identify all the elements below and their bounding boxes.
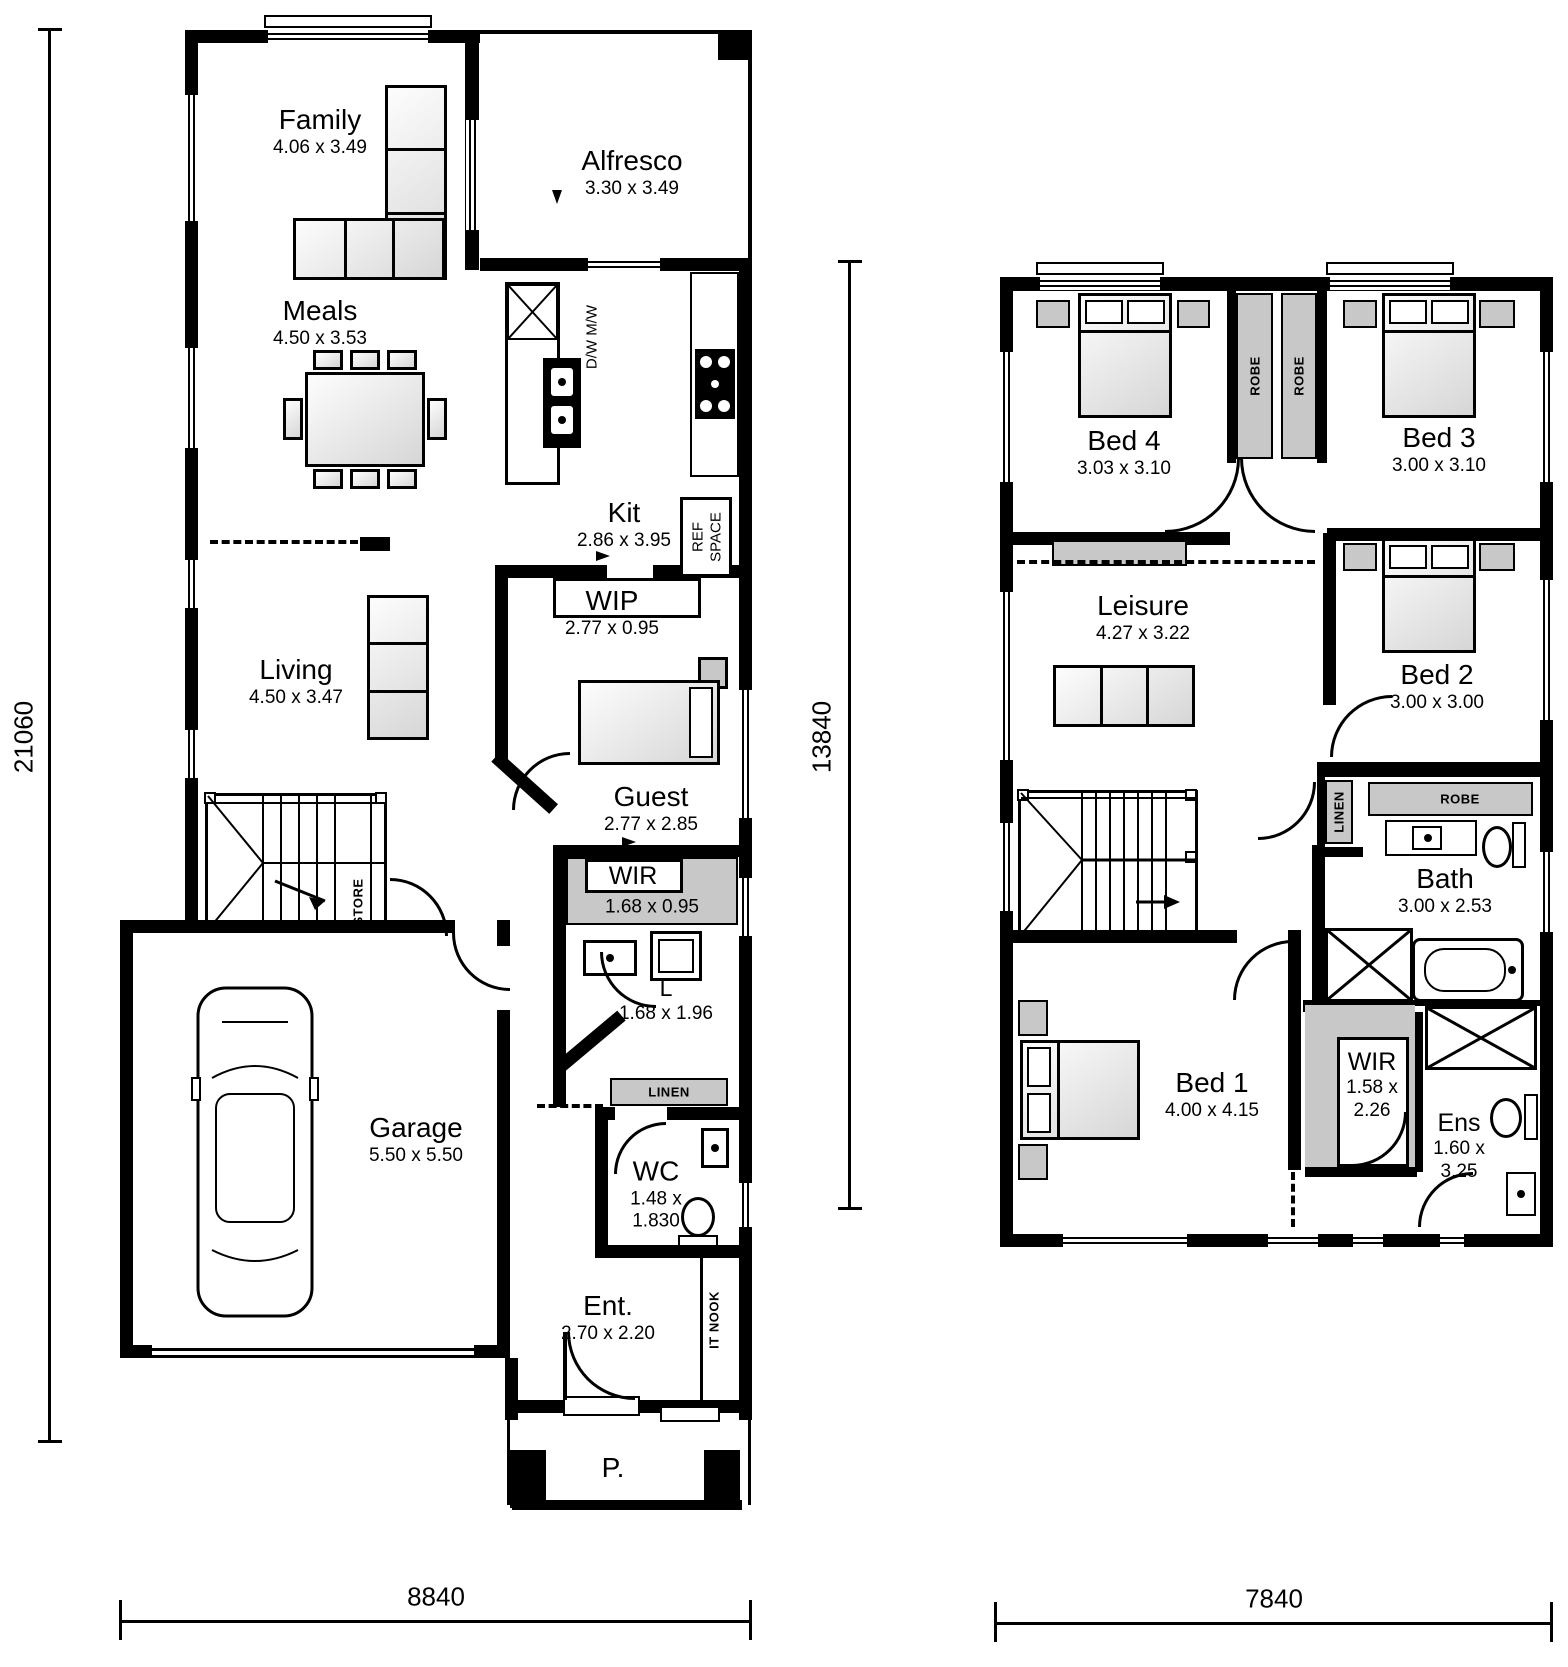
room-dims: 3.00 x 3.00 — [1390, 691, 1484, 714]
room-name: Living — [249, 653, 343, 687]
room-dims: 3.00 x 2.53 — [1398, 895, 1492, 918]
ff-bed3-window-sill — [1326, 262, 1454, 275]
cooktop-icon — [694, 348, 736, 420]
hall-arch-right — [1240, 458, 1315, 533]
ff-hall-bottom-window — [1268, 1234, 1318, 1247]
room-name: Bed 1 — [1165, 1066, 1259, 1100]
room-label-bath: Bath 3.00 x 2.53 — [1398, 862, 1492, 918]
alfresco-bottom-window — [588, 258, 660, 271]
porch-bottom-edge — [512, 1500, 742, 1510]
gf-linen-label: LINEN — [648, 1085, 690, 1100]
room-dims: 4.00 x 4.15 — [1165, 1099, 1259, 1122]
room-name: Meals — [273, 294, 367, 328]
space-label: SPACE — [708, 512, 725, 562]
room-label-kit: Kit 2.86 x 3.95 — [577, 496, 671, 552]
bed-pillow — [1027, 1093, 1051, 1133]
dw-mw-label: D/W M/W — [584, 305, 601, 369]
dining-chair — [313, 469, 343, 489]
bed3-robe-label: ROBE — [1292, 356, 1307, 396]
bed1-door-arc — [1233, 940, 1293, 1000]
robe-wall-left — [1227, 291, 1236, 463]
porch-window-sill — [660, 1406, 720, 1422]
room-name: Bed 2 — [1390, 658, 1484, 692]
room-name: Guest — [604, 780, 698, 814]
ff-width-dim-tick-left — [994, 1602, 997, 1642]
family-sofa-seat — [293, 218, 445, 280]
room-name: Ens — [1433, 1108, 1485, 1138]
sofa-seam — [1146, 668, 1149, 724]
gf-height-dim-line — [48, 30, 51, 1443]
wc-toilet-tank — [678, 1235, 718, 1247]
ff-width-dim-label: 7840 — [1245, 1584, 1303, 1615]
room-dims: 2.70 x 2.20 — [561, 1322, 655, 1345]
dining-chair — [350, 350, 380, 370]
bed4-side-table — [1177, 300, 1210, 328]
robe-wall-right — [1317, 291, 1327, 463]
bathtub-inner — [1424, 948, 1506, 992]
sofa-seam — [370, 642, 426, 645]
sofa-seam — [388, 212, 444, 215]
dining-chair — [387, 350, 417, 370]
room-label-bed2: Bed 2 3.00 x 3.00 — [1390, 658, 1484, 714]
garage-right-wall-upper — [497, 1010, 510, 1358]
bed-pillow — [1389, 545, 1427, 569]
island-hatch-icon — [507, 284, 558, 340]
gf-laundry-window — [739, 878, 752, 936]
gf-height-dim-tick-top — [38, 28, 62, 31]
porch-left-edge — [507, 1420, 510, 1505]
door-arrow-icon — [596, 551, 610, 561]
ff-ceiling-break-dash — [1017, 560, 1315, 564]
room-dims: 3.00 x 3.10 — [1392, 454, 1486, 477]
bed-sheet-line — [1385, 330, 1473, 333]
it-nook-divider — [700, 1258, 703, 1400]
room-dims: 2.77 x 2.85 — [604, 813, 698, 836]
sofa-seam — [344, 221, 347, 277]
room-dims: 3.03 x 3.10 — [1077, 457, 1171, 480]
gf-meals-left-window — [185, 348, 198, 448]
room-name: WIP — [565, 584, 659, 618]
leisure-sofa — [1053, 665, 1195, 727]
bed-sheet-line — [1385, 575, 1473, 578]
ff-stairs-icon — [1018, 790, 1198, 938]
room-name: Bed 4 — [1077, 424, 1171, 458]
garage-left-wall — [120, 920, 133, 1358]
stairs-door-arc — [390, 878, 448, 936]
room-name: Bath — [1398, 862, 1492, 896]
bed4-robe-label: ROBE — [1248, 356, 1263, 396]
gf-height-dim-tick-bottom — [38, 1440, 62, 1443]
room-name: Alfresco — [581, 144, 682, 178]
dining-chair — [427, 398, 447, 440]
bed2-left-wall — [1323, 533, 1336, 705]
room-dims: 1.60 x — [1433, 1138, 1485, 1161]
wc-bottom-wall — [595, 1245, 750, 1258]
bed-pillow — [1127, 300, 1165, 324]
car-icon — [192, 982, 318, 1322]
room-label-ens: Ens 1.60 x 3.25 — [1433, 1108, 1485, 1184]
ent-bottom-wall-left — [510, 1400, 565, 1413]
ff-hall-dash — [1291, 1172, 1295, 1227]
sofa-seam — [370, 690, 426, 693]
ff-bed3-right-window — [1540, 352, 1553, 482]
gf-hall-opening-dash — [537, 1104, 603, 1108]
ff-bath-right-window — [1540, 852, 1553, 932]
garage-bottom-wall-left — [120, 1345, 152, 1358]
alfresco-right-edge — [748, 30, 752, 270]
bed2-bed — [1382, 538, 1476, 653]
guest-door-arc — [512, 752, 570, 810]
ff-height-dim-line — [848, 262, 851, 1210]
bed3-side-table — [1343, 300, 1377, 328]
gf-height-dim-label: 21060 — [9, 701, 40, 773]
room-name: WC — [630, 1154, 682, 1188]
bed-pillow — [1431, 545, 1469, 569]
gf-width-dim-line — [120, 1620, 752, 1623]
wir-top-wall — [553, 845, 750, 857]
wc-top-wall-right — [667, 1107, 750, 1120]
ff-width-dim-tick-right — [1550, 1602, 1553, 1642]
sofa-seam — [388, 148, 444, 151]
guest-bed-pillow — [689, 687, 713, 758]
island-sink-drain-1 — [558, 378, 566, 386]
room-dims: 1.830 — [630, 1211, 682, 1234]
sofa-seam — [1100, 668, 1103, 724]
room-dims: 2.77 x 0.95 — [565, 617, 659, 640]
gf-itnook-window — [739, 1183, 752, 1227]
room-label-leisure: Leisure 4.27 x 3.22 — [1096, 589, 1190, 645]
bed-pillow — [1027, 1047, 1051, 1087]
ff-stairs-left-window — [1000, 823, 1013, 911]
ens-toilet-tank — [1524, 1094, 1538, 1140]
bed-sheet-line — [1081, 330, 1169, 333]
room-label-family: Family 4.06 x 3.49 — [273, 103, 367, 159]
bath-basin-drain — [1424, 834, 1432, 842]
room-name: Ent. — [561, 1289, 655, 1323]
room-name: L — [619, 975, 713, 1003]
room-name: WIR — [609, 861, 658, 891]
ff-width-dim-line — [995, 1622, 1553, 1625]
room-label-ent: Ent. 2.70 x 2.20 — [561, 1289, 655, 1345]
bath-shower-icon — [1325, 928, 1413, 1002]
store-label: STORE — [351, 878, 366, 925]
ff-height-dim-tick-bottom — [838, 1207, 862, 1210]
ff-leisure-left-window — [1000, 592, 1013, 760]
room-name: Garage — [369, 1111, 463, 1145]
room-name: Bed 3 — [1392, 421, 1486, 455]
room-name: WIR — [1346, 1047, 1398, 1077]
door-arrow-icon — [552, 190, 562, 204]
bed3-side-table — [1479, 300, 1515, 328]
laundry-diagonal-wall — [556, 1011, 626, 1072]
room-dims: 1.48 x — [630, 1188, 682, 1211]
dining-chair — [283, 398, 303, 440]
gf-width-dim-label: 8840 — [407, 1582, 465, 1613]
room-dims: 4.50 x 3.53 — [273, 327, 367, 350]
wip-left-wall — [495, 565, 508, 655]
ff-wir-bottom-window — [1353, 1234, 1383, 1247]
ff-bed1-bottom-window — [1063, 1234, 1187, 1247]
room-dims: 1.68 x 1.96 — [619, 1002, 713, 1025]
room-label-meals: Meals 4.50 x 3.53 — [273, 294, 367, 350]
room-label-wip: WIP 2.77 x 0.95 — [565, 584, 659, 640]
room-dims: 3.30 x 3.49 — [581, 177, 682, 200]
ff-bed4-window-sill — [1036, 262, 1164, 275]
bath-toilet-tank — [1512, 822, 1526, 868]
room-dims: 5.50 x 5.50 — [369, 1144, 463, 1167]
wc-basin-drain — [711, 1144, 719, 1152]
porch-right-edge — [748, 1420, 751, 1505]
gf-ceiling-break-dash — [210, 540, 358, 544]
room-label-living: Living 4.50 x 3.47 — [249, 653, 343, 709]
room-label-wc: WC 1.48 x 1.830 — [630, 1154, 682, 1233]
room-name: Leisure — [1096, 589, 1190, 623]
bed-pillow — [1085, 300, 1123, 324]
room-dims: 4.27 x 3.22 — [1096, 622, 1190, 645]
guest-left-wall — [495, 645, 508, 765]
room-label-gf-wir: WIR — [609, 861, 658, 891]
dining-chair — [350, 469, 380, 489]
ff-height-dim-label: 13840 — [807, 701, 838, 773]
room-label-bed3: Bed 3 3.00 x 3.10 — [1392, 421, 1486, 477]
ref-label: REF — [690, 522, 707, 552]
ens-shower-icon — [1425, 1006, 1537, 1070]
wc-top-wall-left — [603, 1107, 615, 1120]
garage-door-line-1 — [152, 1348, 474, 1351]
room-name: P. — [602, 1451, 625, 1485]
bed-pillow — [1431, 300, 1469, 324]
gf-family-top-window — [268, 30, 428, 43]
gf-width-dim-tick-left — [119, 1600, 122, 1640]
gf-living-left-window-1 — [185, 560, 198, 608]
gf-living-left-window-2 — [185, 730, 198, 778]
gf-width-dim-tick-right — [749, 1600, 752, 1640]
room-label-porch: P. — [602, 1451, 625, 1485]
room-label-laundry: L 1.68 x 1.96 — [619, 975, 713, 1025]
bed3-bed — [1382, 293, 1476, 418]
it-nook-label: IT NOOK — [707, 1291, 722, 1349]
garage-door-arc — [452, 933, 510, 991]
bed2-side-table — [1479, 543, 1515, 571]
ff-bed2-right-window — [1540, 580, 1553, 720]
linen-left-wall — [1317, 777, 1325, 855]
ff-bed4-left-window — [1000, 352, 1013, 482]
bath-robe-label: ROBE — [1440, 792, 1480, 807]
family-alfresco-window — [466, 120, 479, 230]
room-dims: 2.26 — [1346, 1100, 1398, 1123]
room-name: Family — [273, 103, 367, 137]
room-dims: 1.58 x — [1346, 1077, 1398, 1100]
sofa-seam — [392, 221, 395, 277]
meals-living-wall-stub — [360, 537, 390, 551]
bed2-side-table — [1343, 543, 1377, 571]
ff-ens-bottom-window — [1440, 1234, 1464, 1247]
kitchen-wip-wall-left — [495, 565, 607, 578]
room-dims-gf-wir: 1.68 x 0.95 — [605, 897, 699, 920]
alfresco-top-edge — [480, 30, 752, 34]
door-arrow-icon — [622, 837, 636, 847]
gf-family-top-window-sill — [264, 15, 432, 28]
ff-bed4-top-window — [1040, 277, 1160, 290]
ff-linen-label: LINEN — [1332, 791, 1347, 833]
bed4-bed — [1078, 293, 1172, 418]
room-dims: 3.25 — [1433, 1161, 1485, 1184]
dining-chair — [313, 350, 343, 370]
wc-toilet-bowl — [681, 1197, 715, 1237]
bed2-door-arc — [1330, 695, 1392, 757]
wc-left-wall — [595, 1107, 608, 1250]
bed-pillow — [1389, 300, 1427, 324]
laundry-trough-inner — [658, 939, 694, 973]
bed4-side-table — [1036, 300, 1070, 328]
gf-guest-window — [739, 690, 752, 818]
hall-arch-left — [1165, 458, 1240, 533]
room-label-bed1: Bed 1 4.00 x 4.15 — [1165, 1066, 1259, 1122]
dining-chair — [387, 469, 417, 489]
ens-vanity-drain — [1517, 1190, 1525, 1198]
bed1-bed — [1020, 1040, 1140, 1140]
floor-plan-canvas: 21060 13840 8840 7840 — [0, 0, 1568, 1667]
alfresco-corner-post — [718, 30, 748, 60]
ens-toilet-bowl — [1490, 1098, 1522, 1138]
room-dims: 1.68 x 0.95 — [605, 897, 699, 920]
room-name: Kit — [577, 496, 671, 530]
room-label-guest: Guest 2.77 x 2.85 — [604, 780, 698, 836]
room-label-garage: Garage 5.50 x 5.50 — [369, 1111, 463, 1167]
bath-left-wall — [1312, 845, 1325, 1005]
bath-door-arc — [1258, 782, 1316, 840]
room-dims: 4.50 x 3.47 — [249, 686, 343, 709]
ff-bed3-top-window — [1330, 277, 1450, 290]
ff-height-dim-tick-top — [838, 260, 862, 263]
bed1-side-table — [1018, 1000, 1048, 1036]
island-sink-drain-2 — [558, 416, 566, 424]
living-sofa — [367, 595, 429, 740]
room-label-alfresco: Alfresco 3.30 x 3.49 — [581, 144, 682, 200]
gf-family-left-window — [185, 95, 198, 221]
bed2-bath-wall — [1317, 762, 1553, 777]
garage-door-line-2 — [152, 1355, 474, 1358]
guest-bed — [578, 680, 720, 765]
bed1-side-table — [1018, 1144, 1048, 1180]
room-label-ff-wir: WIR 1.58 x 2.26 — [1346, 1047, 1398, 1123]
bathtub-drain — [1508, 966, 1516, 974]
bed-sheet-line — [1057, 1043, 1060, 1137]
room-dims: 2.86 x 3.95 — [577, 529, 671, 552]
room-dims: 4.06 x 3.49 — [273, 136, 367, 159]
room-label-bed4: Bed 4 3.03 x 3.10 — [1077, 424, 1171, 480]
dining-table — [305, 372, 425, 467]
